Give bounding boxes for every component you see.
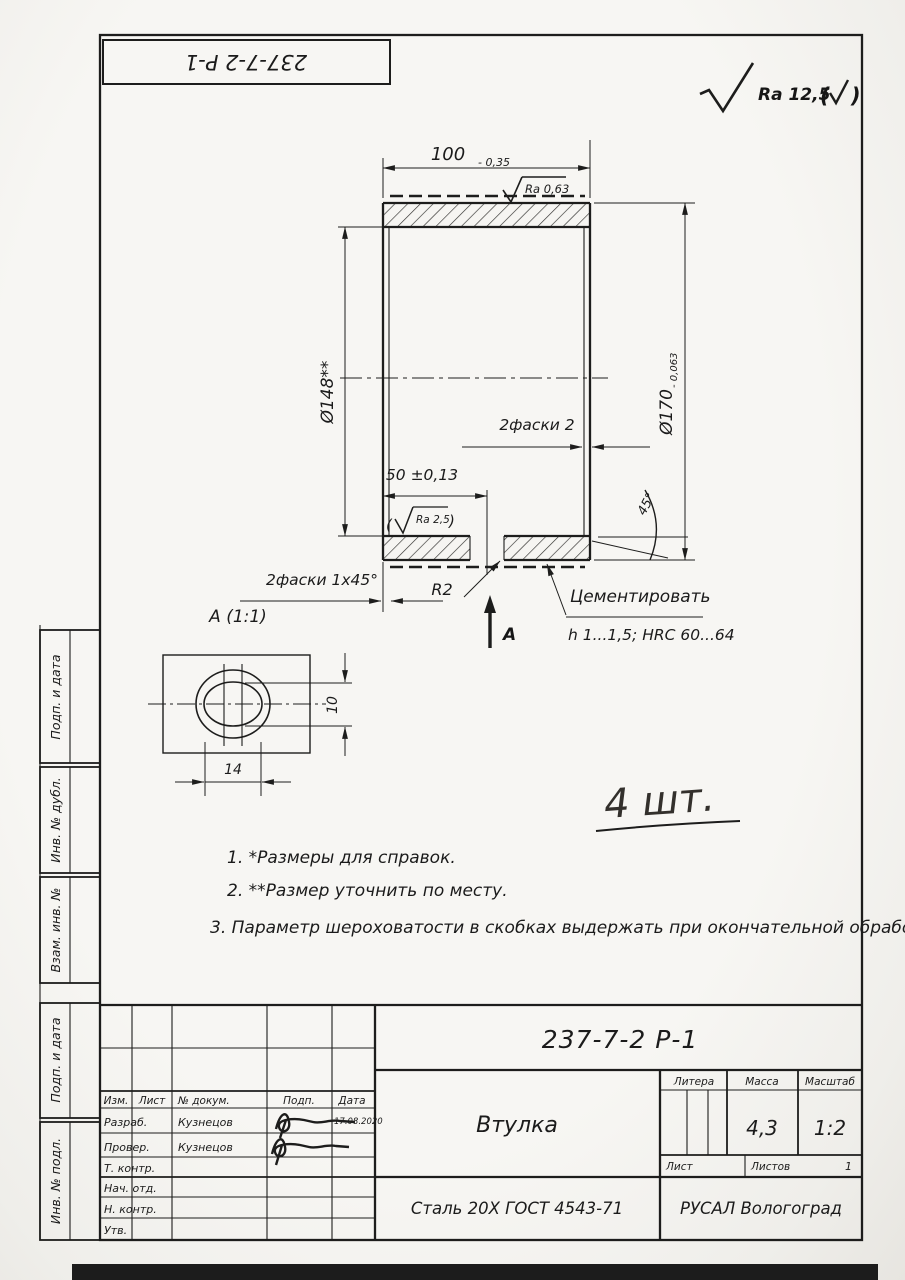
row-role-utv: Утв. [104,1224,127,1237]
note-2: 2. **Размер уточнить по месту. [227,881,508,901]
col-dokum: № докум. [177,1095,230,1107]
company: РУСАЛ Вологоград [680,1199,842,1218]
section-arrow-label: А [501,625,516,645]
dim-slot-width-value: 14 [224,762,242,778]
chamfer-left-callout: 2фаски 1x45° [240,562,443,612]
title-block: 237-7-2 Р-1 Втулка Сталь 20Х ГОСТ 4543-7… [100,1005,862,1240]
col-podp: Подп. [283,1095,315,1107]
sheets-value: 1 [845,1160,852,1173]
row-name-razrab: Кузнецов [178,1116,233,1129]
dim-slot-height-value: 10 [325,696,341,714]
roughness-top-value: Ra 0,63 [525,182,569,196]
dim-length-tolerance: - 0,35 [478,156,510,169]
scanned-drawing-sheet: 237-7-2 Р-1 Ra 12,5 ( ) [0,0,905,1280]
material: Сталь 20Х ГОСТ 4543-71 [411,1199,623,1218]
signature-prover [272,1139,349,1165]
dim-slot-value: 50 ±0,13 [386,466,458,484]
col-izm: Изм. [104,1095,129,1107]
mass-label: Масса [745,1076,778,1088]
dim-inner-value: Ø148** [318,361,338,425]
paren-close: ) [448,512,455,530]
paren-open: ( [820,84,830,108]
roughness-bore: ( Ra 2,5 ) [386,507,455,534]
roughness-check-icon [700,63,753,111]
detail-view-a: А (1:1) 10 14 [148,607,352,796]
main-view: 100 - 0,35 Ra 0,63 Ø148** Ø170 - 0,063 [240,140,735,648]
roughness-check-icon [395,507,413,533]
designation: 237-7-2 Р-1 [542,1025,699,1054]
dim-slot-width: 14 [175,742,291,796]
small-check-icon [830,80,848,103]
chamfer-right-callout: 2фаски 2 [462,416,650,447]
quantity-note: 4 шт. [602,774,716,828]
photo-edge-strip [72,1264,878,1280]
col-list: Лист [138,1095,166,1107]
sheet-label: Лист [665,1161,693,1173]
note-3: 3. Параметр шероховатости в скобках выде… [210,918,905,938]
treatment-name: Цементировать [570,587,711,607]
side-label-2: Инв. № дубл. [48,777,63,863]
chamfer-angle-callout: 45° [592,490,688,560]
scale-label: Масштаб [805,1076,855,1088]
side-column: Подп. и дата Инв. № дубл. Взам. инв. № П… [40,630,100,1240]
row-role-prover: Провер. [104,1141,150,1154]
drawing-canvas: 237-7-2 Р-1 Ra 12,5 ( ) [0,0,905,1280]
technical-notes: 1. *Размеры для справок. 2. **Размер уто… [210,848,905,938]
row-role-nachotd: Нач. отд. [104,1182,157,1195]
side-label-1: Подп. и дата [48,654,63,739]
dim-inner-diameter: Ø148** [318,227,389,536]
heat-treatment-callout: Цементировать h 1...1,5; HRC 60...64 [547,564,735,644]
roughness-bore-value: Ra 2,5 [416,514,450,526]
general-roughness: Ra 12,5 ( ) [700,63,861,111]
mass-value: 4,3 [746,1116,778,1140]
note-1: 1. *Размеры для справок. [227,848,456,868]
dim-length-value: 100 [431,144,465,165]
radius-label: R2 [431,580,452,599]
dim-outer-value: Ø170 [657,389,677,436]
section-arrow: А [484,595,516,648]
quantity-annotation: 4 шт. [596,774,740,831]
chamfer-right-label: 2фаски 2 [499,416,574,434]
roughness-top-face: Ra 0,63 [503,177,569,202]
flipped-designation: 237-7-2 Р-1 [185,50,307,74]
row-role-nkontr: Н. контр. [104,1203,157,1216]
dim-outer-tolerance: - 0,063 [669,353,680,388]
col-data: Дата [337,1095,365,1107]
detail-title: А (1:1) [208,607,267,627]
part-name: Втулка [476,1113,558,1138]
chamfer-left-label: 2фаски 1x45° [266,571,378,589]
row-role-tkontr: Т. контр. [104,1162,155,1175]
litera-label: Литера [673,1076,714,1088]
side-label-4: Подп. и дата [48,1017,63,1102]
treatment-spec: h 1...1,5; HRC 60...64 [568,626,735,644]
sheets-label: Листов [750,1161,790,1173]
paren-close: ) [850,84,861,108]
scale-value: 1:2 [814,1116,846,1140]
row-role-razrab: Разраб. [104,1116,147,1129]
section-arrow-head-icon [484,595,496,613]
roughness-check-icon [503,177,522,202]
side-label-5: Инв. № подл. [48,1138,63,1224]
row-name-prover: Кузнецов [178,1141,233,1154]
flipped-designation-box: 237-7-2 Р-1 [185,50,307,74]
paren-open: ( [386,516,393,534]
side-label-3: Взам. инв. № [48,888,63,973]
